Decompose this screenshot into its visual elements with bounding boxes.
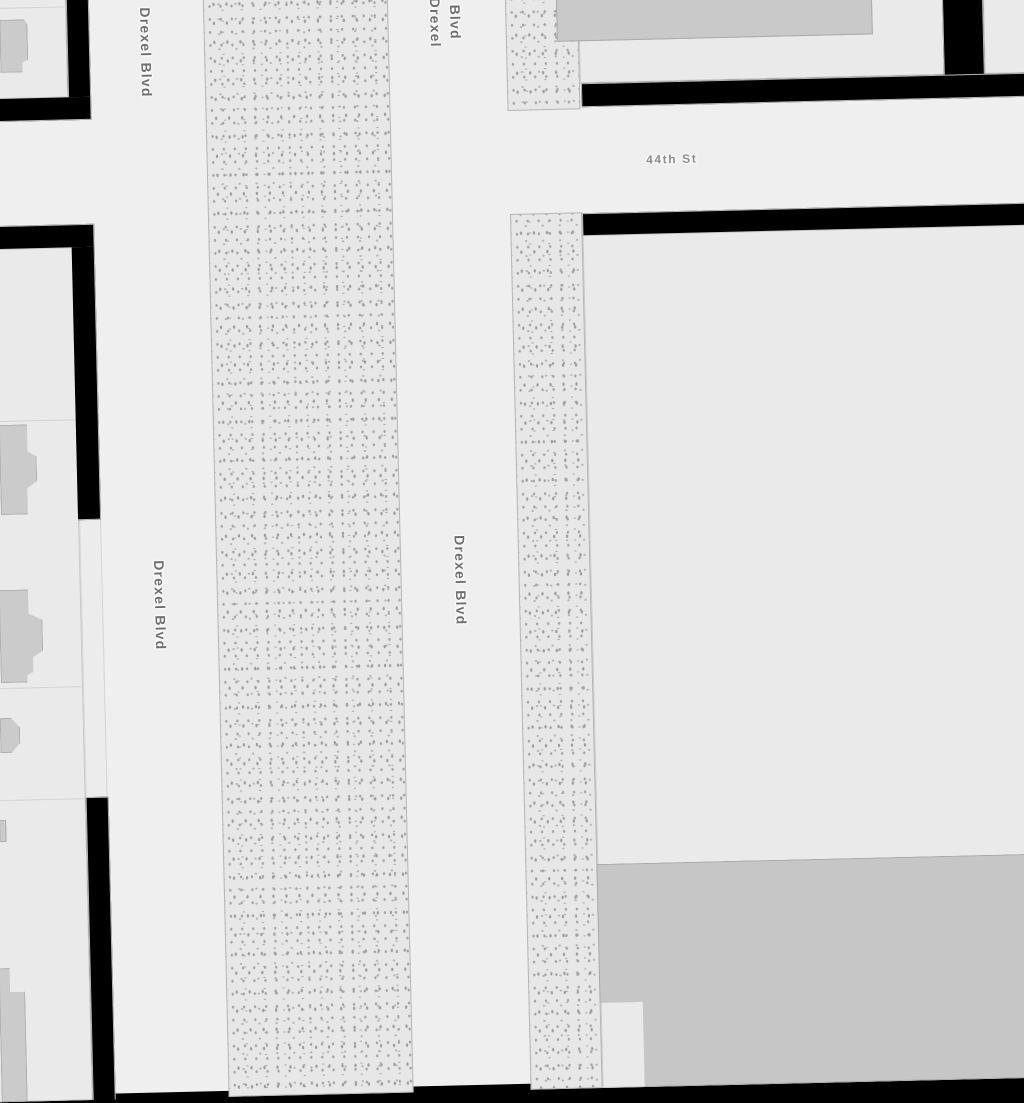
street-label-drexel-top-line2: Blvd <box>447 4 464 40</box>
map-canvas[interactable]: Drexel Blvd Drexel Blvd Drexel Blvd Drex… <box>0 0 1024 1036</box>
boulevard-median-strip <box>202 0 414 1097</box>
building <box>596 852 1024 1088</box>
building <box>0 820 7 842</box>
alley-gap <box>65 0 91 97</box>
street-label-44th-st: 44th St <box>646 152 698 167</box>
block-northeast-corner <box>981 0 1024 74</box>
alley-gap <box>0 97 92 124</box>
street-label-drexel-top-line1: Drexel <box>427 0 444 48</box>
street-label-drexel-blvd-nw: Drexel Blvd <box>137 7 155 98</box>
street-label-drexel-blvd-center: Drexel Blvd <box>452 535 470 626</box>
street-label-drexel-blvd-west: Drexel Blvd <box>151 560 169 651</box>
